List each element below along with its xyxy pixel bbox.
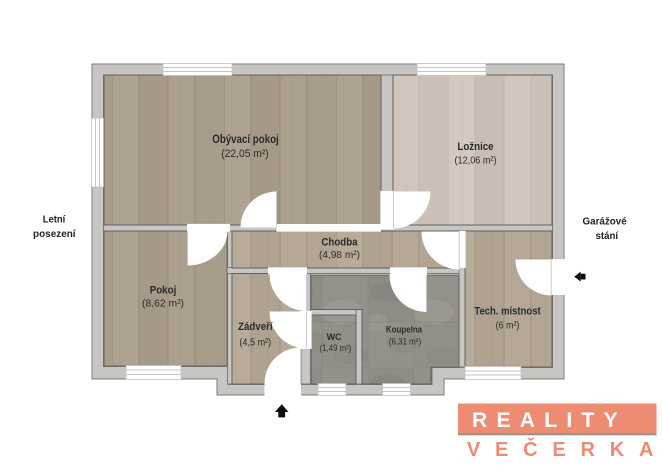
svg-text:Zádveří: Zádveří	[238, 321, 273, 333]
svg-text:posezení: posezení	[33, 228, 77, 240]
svg-text:(8,62 m²): (8,62 m²)	[142, 297, 184, 309]
svg-text:REALITY: REALITY	[472, 409, 627, 432]
svg-text:(6 m²): (6 m²)	[496, 321, 520, 332]
svg-text:Garážové: Garážové	[583, 215, 627, 227]
svg-text:Obývací pokoj: Obývací pokoj	[212, 134, 279, 146]
svg-text:Pokoj: Pokoj	[150, 284, 177, 296]
svg-text:(1,49 m²): (1,49 m²)	[320, 343, 352, 353]
svg-text:Letní: Letní	[43, 214, 67, 226]
svg-text:WC: WC	[327, 332, 342, 343]
svg-text:Ložnice: Ložnice	[457, 141, 493, 153]
svg-text:Tech. místnost: Tech. místnost	[474, 306, 541, 318]
svg-text:(4,5 m²): (4,5 m²)	[239, 337, 271, 348]
svg-text:Koupelna: Koupelna	[386, 324, 423, 335]
svg-text:stání: stání	[596, 230, 620, 242]
svg-text:(22,05 m²): (22,05 m²)	[221, 148, 269, 160]
svg-text:(6,31 m²): (6,31 m²)	[389, 336, 421, 346]
svg-text:VEČERKA: VEČERKA	[467, 437, 662, 461]
svg-text:(12,06 m²): (12,06 m²)	[455, 155, 497, 167]
svg-text:Chodba: Chodba	[321, 237, 358, 249]
svg-text:(4,98 m²): (4,98 m²)	[319, 249, 360, 261]
